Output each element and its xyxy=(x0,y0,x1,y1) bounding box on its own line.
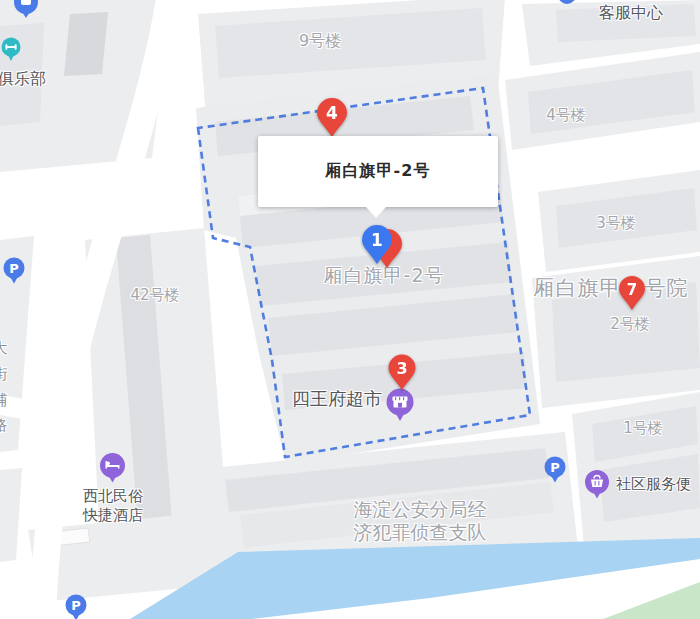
label-building-2: 2号楼 xyxy=(610,315,650,334)
label-building-9: 9号楼 xyxy=(299,31,341,52)
label-building-4: 4号楼 xyxy=(546,106,586,125)
label-club: 俱乐部 xyxy=(0,69,46,90)
marker-1-number: 1 xyxy=(371,230,383,250)
label-service-center: 客服中心 xyxy=(599,3,663,24)
marker-4-number: 4 xyxy=(326,103,338,123)
label-police: 海淀公安分局经 济犯罪侦查支队 xyxy=(354,498,487,544)
parking-icon-east[interactable]: P xyxy=(543,455,567,485)
map-ground-layer xyxy=(0,0,700,619)
park-green xyxy=(603,582,700,619)
marker-4[interactable]: 4 xyxy=(315,96,349,140)
community-store-poi-icon[interactable] xyxy=(584,469,610,502)
marker-7-number: 7 xyxy=(627,281,637,299)
top-edge-poi-icon[interactable] xyxy=(558,0,576,4)
storefront-icon xyxy=(393,397,408,408)
info-popup-pointer xyxy=(366,207,386,218)
marker-3[interactable]: 3 xyxy=(387,353,417,393)
info-popup-title: 厢白旗甲-2号 xyxy=(258,136,498,207)
label-building-42: 42号楼 xyxy=(130,286,179,305)
parking-letter: P xyxy=(550,460,560,475)
hotel-poi-icon[interactable] xyxy=(99,452,126,486)
info-popup[interactable]: 厢白旗甲-2号 xyxy=(258,136,498,207)
station-poi-icon[interactable] xyxy=(13,0,39,22)
label-road-name: 大街辅路 xyxy=(0,328,9,432)
label-building-1: 1号楼 xyxy=(623,419,663,438)
label-hotel: 西北民俗 快捷酒店 xyxy=(83,487,143,525)
map-canvas[interactable]: 9号楼 客服中心 4号楼 3号楼 厢白旗甲-2号院 2号楼 1号楼 42号楼 厢… xyxy=(0,0,700,619)
label-supermarket: 四王府超市 xyxy=(292,387,382,411)
marker-1[interactable]: 1 xyxy=(360,223,406,271)
parking-letter: P xyxy=(9,261,19,276)
marker-3-number: 3 xyxy=(396,359,407,378)
label-community-service: 社区服务便 xyxy=(616,475,691,494)
parking-icon-west[interactable]: P xyxy=(2,256,26,286)
label-compound: 厢白旗甲-2号院 xyxy=(534,274,689,302)
label-building-3: 3号楼 xyxy=(596,214,636,233)
road-west-branch xyxy=(0,404,62,418)
club-poi-icon[interactable] xyxy=(0,36,22,64)
station-glyph-icon xyxy=(21,0,31,5)
parking-icon-south[interactable]: P xyxy=(64,593,88,619)
marker-7[interactable]: 7 xyxy=(618,275,646,313)
parking-letter: P xyxy=(71,598,81,613)
